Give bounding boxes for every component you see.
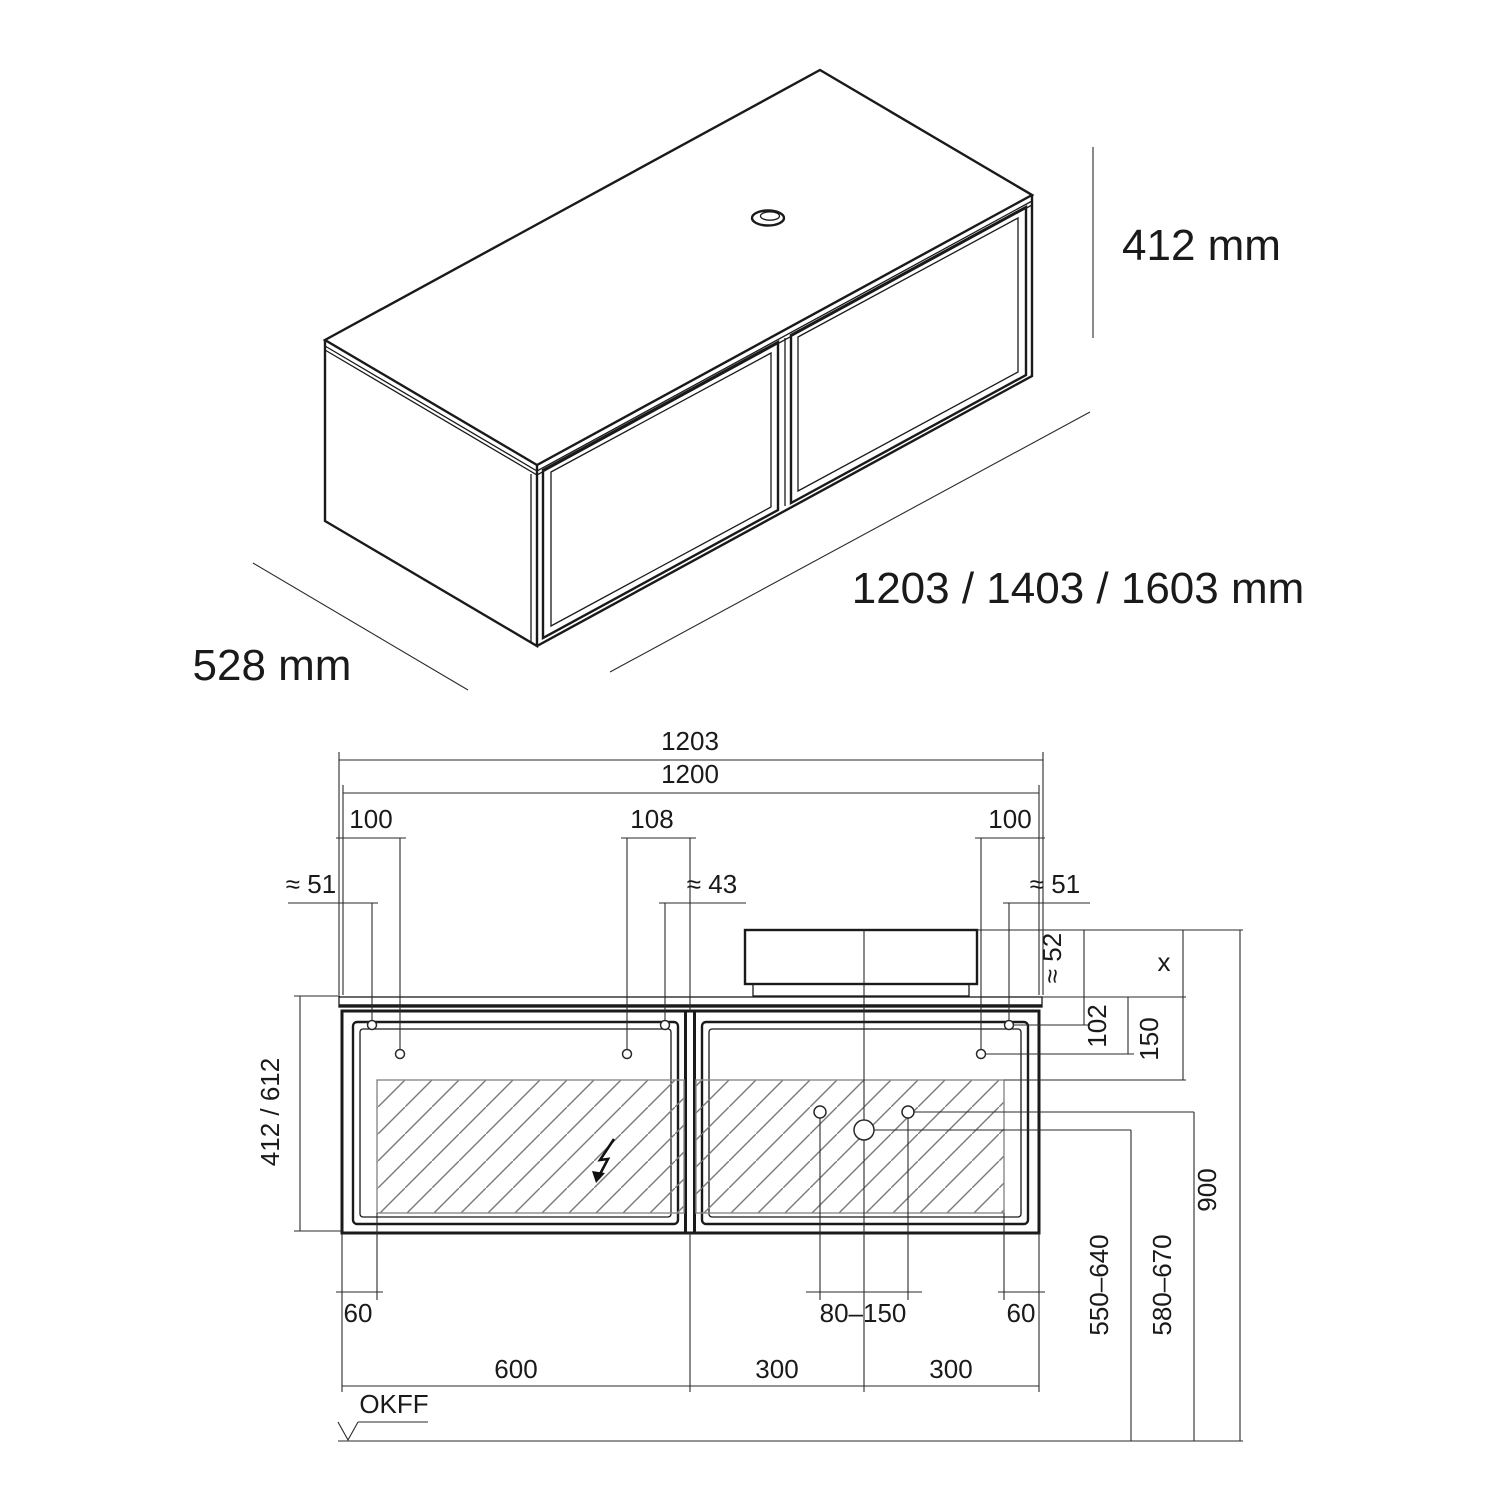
- mounting-hole: [977, 1050, 986, 1059]
- dim-right-hole-offset: 100: [988, 804, 1031, 834]
- mounting-hole: [368, 1021, 377, 1030]
- dim-left-inset: 60: [344, 1298, 373, 1328]
- dim-cabinet-width: 1200: [661, 759, 719, 789]
- iso-width-dim-label: 1203 / 1403 / 1603 mm: [852, 564, 1305, 613]
- dim-counter-to-hole: 102: [1082, 1004, 1112, 1047]
- dim-right-hole-approx: ≈ 51: [1030, 869, 1080, 899]
- iso-drawer-left-outer: [543, 342, 778, 638]
- dim-center-hole-offset: 108: [630, 804, 673, 834]
- dim-cabinet-height: 412 / 612: [255, 1058, 285, 1166]
- technical-drawing-page: 412 mm 528 mm 1203 / 1403 / 1603 mm: [0, 0, 1500, 1500]
- iso-left-face: [325, 340, 537, 646]
- iso-depth-dim-label: 528 mm: [193, 641, 352, 690]
- dim-center-section: 300: [755, 1354, 798, 1384]
- drain-hole: [854, 1120, 874, 1140]
- dim-lower-range: 550–640: [1084, 1234, 1114, 1335]
- hatch-zone-right: [696, 1080, 1004, 1213]
- dim-left-section: 600: [494, 1354, 537, 1384]
- mounting-hole: [661, 1021, 670, 1030]
- iso-drawer-left-inner: [551, 353, 771, 626]
- dim-overall-width: 1203: [661, 726, 719, 756]
- supply-hole: [814, 1106, 826, 1118]
- iso-drawer-right-inner: [798, 218, 1018, 491]
- faucet-hole-icon: [752, 211, 784, 226]
- dim-floor-to-rim: 900: [1192, 1168, 1222, 1211]
- iso-drawer-right-outer: [791, 207, 1026, 503]
- vanity-technical-drawing: 412 mm 528 mm 1203 / 1403 / 1603 mm: [0, 0, 1500, 1500]
- elevation-view: 1203 1200 100 108 100 ≈ 51 ≈ 43 ≈ 51 412…: [255, 726, 1243, 1441]
- dim-basin-height-x: x: [1158, 947, 1171, 977]
- dim-basin-rim-to-hole: ≈ 52: [1037, 933, 1067, 983]
- dim-right-inset: 60: [1007, 1298, 1036, 1328]
- mounting-hole: [623, 1050, 632, 1059]
- mounting-hole: [1005, 1021, 1014, 1030]
- datum-label: OKFF: [359, 1389, 428, 1419]
- basin: [745, 930, 977, 996]
- iso-height-dim-label: 412 mm: [1122, 221, 1281, 270]
- dim-counter-to-zone: 150: [1134, 1017, 1164, 1060]
- datum-symbol: [338, 1422, 1243, 1441]
- dim-right-section: 300: [929, 1354, 972, 1384]
- dim-left-hole-offset: 100: [349, 804, 392, 834]
- dim-center-hole-approx: ≈ 43: [687, 869, 737, 899]
- iso-width-dim-line: [610, 412, 1090, 672]
- dim-upper-range: 580–670: [1147, 1234, 1177, 1335]
- hatch-zone-left: [377, 1080, 684, 1213]
- dim-left-hole-approx: ≈ 51: [286, 869, 336, 899]
- supply-hole: [902, 1106, 914, 1118]
- isometric-view: 412 mm 528 mm 1203 / 1403 / 1603 mm: [193, 70, 1305, 690]
- dim-drain-offset-range: 80–150: [820, 1298, 907, 1328]
- mounting-hole: [396, 1050, 405, 1059]
